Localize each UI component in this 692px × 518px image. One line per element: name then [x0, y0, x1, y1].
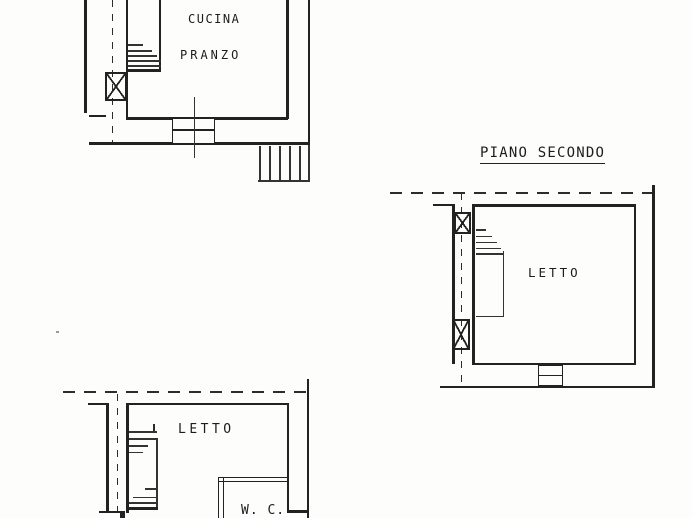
stair-landing-edge	[128, 507, 158, 510]
stair-tread	[129, 502, 158, 504]
stair-tread	[145, 488, 158, 490]
wc-top-wall	[218, 477, 289, 482]
outer-left-wall	[106, 403, 109, 513]
room-label-letto: LETTO	[178, 423, 235, 436]
stair-tread	[129, 445, 148, 447]
reference-dashed-line	[63, 391, 307, 393]
outer-right-wall	[307, 379, 310, 518]
stair-tread	[129, 452, 143, 454]
stair-tread	[129, 438, 157, 440]
inner-right-wall	[287, 404, 290, 512]
wall-connector	[287, 510, 308, 513]
room-label-wc: W. C.	[241, 504, 285, 517]
top-wall	[126, 403, 289, 406]
stair-tread	[129, 431, 157, 433]
inner-left-wall	[126, 403, 129, 513]
wc-left-wall	[218, 477, 224, 518]
floor-plan-sheet: CUCINA PRANZO PIANO SECONDO LETTO	[0, 0, 692, 518]
wall-centerline-dashed	[117, 394, 119, 518]
corner-jog-stub	[120, 513, 125, 518]
scan-speck	[56, 331, 59, 333]
stairwell-edge	[156, 438, 158, 510]
plan-bedroom-floor: LETTO W. C.	[0, 0, 692, 518]
stair-tread	[133, 497, 158, 499]
